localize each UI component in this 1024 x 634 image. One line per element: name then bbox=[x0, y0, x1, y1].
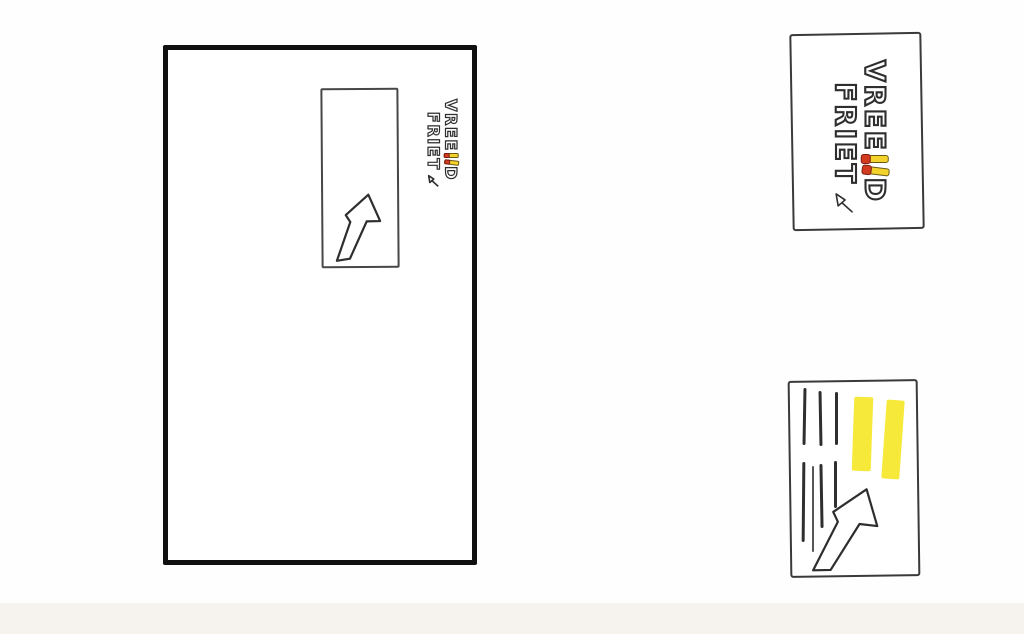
logo-text: FRIET bbox=[424, 112, 443, 171]
logo-text: VREE bbox=[858, 60, 891, 153]
flyer-highlight-mark bbox=[852, 397, 874, 472]
fry-icon bbox=[444, 153, 459, 158]
flyer-text-line bbox=[835, 392, 838, 445]
logo-text: D bbox=[441, 166, 460, 181]
logo-text: VREE bbox=[441, 99, 460, 152]
fry-icon bbox=[863, 166, 890, 177]
arrow-doodle-icon bbox=[833, 191, 857, 215]
vreemd-friet-logo-poster: VREED FRIET bbox=[416, 99, 460, 195]
logo-line-friet: FRIET bbox=[425, 112, 442, 195]
logo-line-friet: FRIET bbox=[830, 82, 859, 220]
fry-icon bbox=[863, 155, 889, 163]
vreemd-friet-logo-card: VREED FRIET bbox=[825, 60, 891, 220]
logo-text: FRIET bbox=[829, 82, 862, 185]
poster-arrow-up-right-icon bbox=[319, 183, 385, 273]
fries-icon bbox=[863, 155, 889, 175]
logo-text: D bbox=[858, 178, 891, 204]
paper-edge bbox=[0, 603, 1024, 634]
fries-icon bbox=[444, 153, 459, 165]
arrow-doodle-icon bbox=[427, 174, 441, 188]
logo-line-vreemd: VREED bbox=[441, 99, 460, 195]
fry-icon bbox=[444, 159, 459, 166]
sketch-canvas: VREED FRIET VREED FRIET bbox=[0, 0, 1024, 634]
logo-line-vreemd: VREED bbox=[860, 60, 891, 220]
